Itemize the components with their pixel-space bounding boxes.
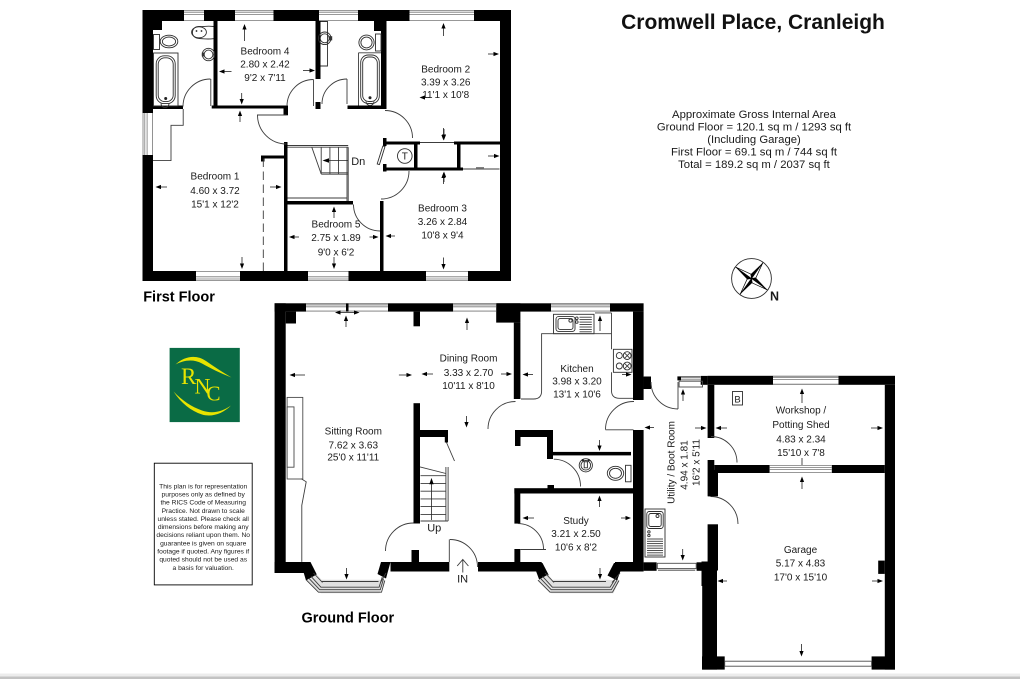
svg-text:3.33 x 2.70: 3.33 x 2.70	[444, 368, 494, 379]
svg-text:B: B	[734, 395, 740, 406]
svg-text:Potting Shed: Potting Shed	[772, 420, 829, 431]
svg-text:This plan is for representatio: This plan is for representation	[159, 483, 247, 490]
svg-text:5.17 x 4.83: 5.17 x 4.83	[776, 559, 826, 570]
svg-text:Bedroom 4: Bedroom 4	[241, 47, 290, 58]
svg-text:10'11 x 8'10: 10'11 x 8'10	[442, 381, 495, 392]
svg-text:Approximate Gross Internal Are: Approximate Gross Internal Area	[672, 109, 837, 121]
svg-text:4.83 x 2.34: 4.83 x 2.34	[776, 435, 826, 446]
svg-text:First Floor: First Floor	[143, 290, 215, 306]
svg-text:Study: Study	[563, 516, 589, 527]
svg-text:Cromwell Place, Cranleigh: Cromwell Place, Cranleigh	[621, 11, 885, 34]
svg-text:11'1 x 10'8: 11'1 x 10'8	[422, 90, 469, 101]
svg-text:Bedroom 1: Bedroom 1	[191, 172, 240, 183]
svg-text:3.21 x 2.50: 3.21 x 2.50	[551, 529, 601, 540]
svg-text:Up: Up	[427, 523, 441, 535]
svg-text:2.80 x 2.42: 2.80 x 2.42	[240, 60, 290, 71]
svg-text:10'6 x 8'2: 10'6 x 8'2	[555, 543, 598, 554]
svg-text:Kitchen: Kitchen	[560, 364, 593, 375]
svg-text:decisions reliant upon them. N: decisions reliant upon them. No	[156, 532, 250, 539]
svg-text:Dn: Dn	[351, 156, 365, 168]
svg-text:a basis for valuation.: a basis for valuation.	[173, 565, 234, 572]
svg-text:4.94 x 1.81: 4.94 x 1.81	[680, 440, 691, 490]
svg-text:C: C	[207, 382, 221, 406]
svg-text:15'10 x 7'8: 15'10 x 7'8	[777, 448, 825, 459]
svg-text:N: N	[770, 290, 779, 304]
svg-text:footage if quoted. Any figures: footage if quoted. Any figures if	[157, 549, 249, 556]
svg-text:10'8 x 9'4: 10'8 x 9'4	[421, 231, 464, 242]
svg-text:7.62 x 3.63: 7.62 x 3.63	[329, 440, 379, 451]
svg-text:T: T	[402, 152, 408, 163]
svg-text:Bedroom 5: Bedroom 5	[312, 220, 361, 231]
svg-text:IN: IN	[457, 574, 468, 586]
svg-text:9'0 x 6'2: 9'0 x 6'2	[318, 248, 355, 259]
svg-text:17'0 x 15'10: 17'0 x 15'10	[774, 572, 828, 583]
svg-text:Sitting Room: Sitting Room	[325, 427, 382, 438]
svg-text:the RICS Code of Measuring: the RICS Code of Measuring	[160, 500, 246, 507]
svg-text:purposes only as defined by: purposes only as defined by	[162, 491, 246, 498]
svg-text:9'2 x 7'11: 9'2 x 7'11	[244, 73, 286, 84]
svg-text:Ground Floor = 120.1 sq m / 12: Ground Floor = 120.1 sq m / 1293 sq ft	[657, 122, 852, 134]
svg-text:Practice. Not drawn to scale: Practice. Not drawn to scale	[162, 508, 246, 515]
svg-text:15'1 x 12'2: 15'1 x 12'2	[191, 200, 239, 211]
svg-text:Dining Room: Dining Room	[440, 353, 498, 364]
svg-text:First Floor = 69.1 sq m / 744: First Floor = 69.1 sq m / 744 sq ft	[671, 147, 838, 159]
svg-text:3.26 x 2.84: 3.26 x 2.84	[418, 217, 468, 228]
svg-text:3.39 x 3.26: 3.39 x 3.26	[421, 78, 471, 89]
svg-text:4.60 x 3.72: 4.60 x 3.72	[190, 186, 240, 197]
svg-text:Total = 189.2 sq m / 2037 sq f: Total = 189.2 sq m / 2037 sq ft	[678, 159, 831, 171]
svg-text:Bedroom 3: Bedroom 3	[418, 204, 467, 215]
svg-text:2.75 x 1.89: 2.75 x 1.89	[311, 233, 361, 244]
svg-text:3.98 x 3.20: 3.98 x 3.20	[552, 377, 602, 388]
svg-text:16'2 x 5'11: 16'2 x 5'11	[692, 439, 703, 486]
svg-text:Bedroom 2: Bedroom 2	[421, 65, 470, 76]
svg-text:guarantee is given on square: guarantee is given on square	[160, 540, 247, 547]
svg-text:quoted should not be used as: quoted should not be used as	[159, 557, 247, 564]
svg-text:13'1 x 10'6: 13'1 x 10'6	[553, 390, 601, 401]
svg-text:Ground Floor: Ground Floor	[302, 611, 395, 627]
svg-text:Workshop /: Workshop /	[776, 405, 827, 416]
svg-text:dimensions before making any: dimensions before making any	[158, 524, 249, 531]
svg-text:Utility / Boot Room: Utility / Boot Room	[667, 421, 678, 504]
svg-text:(Including Garage): (Including Garage)	[707, 134, 801, 146]
svg-text:unless stated. Please check al: unless stated. Please check all	[157, 516, 249, 523]
svg-text:Garage: Garage	[784, 545, 818, 556]
svg-text:25'0 x 11'11: 25'0 x 11'11	[327, 453, 379, 464]
